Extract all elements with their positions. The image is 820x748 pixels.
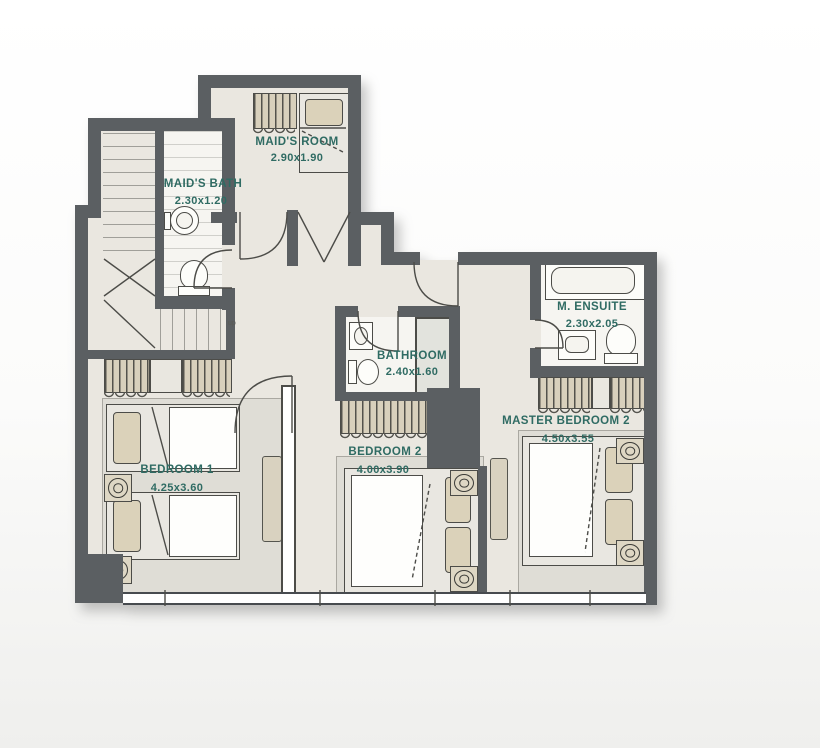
blanket (169, 495, 237, 557)
wall-segment (644, 252, 657, 605)
room-dims-master-bedroom-2: 4.50x3.55 (542, 433, 595, 445)
wall-entry-jamb (287, 210, 298, 266)
wardrobe-front (104, 392, 148, 399)
wall-partition (281, 385, 296, 598)
wall-segment (155, 296, 235, 309)
wall-segment (449, 306, 460, 401)
wardrobe-front (253, 128, 295, 135)
nightstand (104, 474, 132, 502)
nightstand (450, 470, 478, 496)
wardrobe-front (340, 433, 428, 440)
wardrobe (340, 400, 430, 434)
blanket (351, 475, 423, 587)
room-label-maids-room: MAID'S ROOM (255, 136, 338, 148)
wall-segment (75, 554, 123, 603)
wall-segment (155, 131, 164, 301)
toilet-tank (178, 286, 210, 296)
blanket (529, 443, 593, 557)
wall-segment (530, 252, 657, 265)
wardrobe-front (182, 392, 230, 399)
wardrobe-front (610, 408, 646, 415)
wall-segment (394, 252, 420, 265)
wall-segment (335, 306, 358, 317)
room-dims-maids-room: 2.90x1.90 (271, 152, 324, 164)
wall-segment (88, 350, 235, 359)
toilet-tank (604, 353, 638, 364)
cabinet (592, 377, 610, 409)
wardrobe (104, 359, 150, 393)
room-label-bathroom: BATHROOM (377, 350, 447, 362)
window-band (123, 592, 646, 605)
nightstand (450, 566, 478, 592)
room-dims-bathroom: 2.40x1.60 (386, 366, 439, 378)
blanket (169, 407, 237, 469)
wall-segment (226, 310, 235, 352)
room-label-maids-bath: MAID'S BATH (164, 178, 242, 190)
room-label-ensuite: M. ENSUITE (557, 301, 627, 313)
room-dims-ensuite: 2.30x2.05 (566, 318, 619, 330)
wall-block (427, 388, 480, 468)
wall-segment (75, 205, 88, 603)
lamp-icon (108, 478, 128, 498)
floor-plan-sheet: MAID'S ROOM 2.90x1.90 MAID'S BATH 2.30x1… (0, 0, 820, 748)
wardrobe (182, 359, 232, 393)
dresser (490, 458, 508, 540)
sink-backsplash (164, 212, 171, 230)
sink (558, 330, 596, 360)
wall-segment (335, 306, 346, 401)
lamp-icon (620, 544, 640, 562)
room-dims-maids-bath: 2.30x1.20 (175, 195, 228, 207)
lamp-icon (454, 570, 474, 588)
bathtub (545, 262, 645, 300)
nightstand (616, 540, 644, 566)
bed-twin-1 (106, 404, 240, 472)
room-dims-bedroom-1: 4.25x3.60 (151, 482, 204, 494)
toilet (180, 260, 208, 289)
lamp-icon (620, 442, 640, 460)
wardrobe (610, 377, 648, 409)
wardrobe-front (538, 408, 590, 415)
cabinet (150, 359, 182, 393)
pillow (305, 99, 343, 126)
pillow (605, 499, 633, 545)
room-label-master-bedroom-2: MASTER BEDROOM 2 (502, 415, 630, 427)
room-label-bedroom-2: BEDROOM 2 (348, 446, 421, 458)
bed-twin-2 (106, 492, 240, 560)
wall-segment (478, 466, 487, 602)
wall-segment (198, 75, 361, 88)
lamp-icon (454, 474, 474, 492)
stairs-upper-flight (103, 133, 155, 259)
nightstand (616, 438, 644, 464)
wall-segment (348, 75, 361, 266)
toilet (357, 359, 379, 385)
wall-segment (88, 118, 101, 218)
wardrobe (253, 93, 297, 129)
toilet-tank (348, 360, 357, 384)
wall-segment (530, 366, 646, 377)
room-label-bedroom-1: BEDROOM 1 (140, 464, 213, 476)
floor-plan: MAID'S ROOM 2.90x1.90 MAID'S BATH 2.30x1… (0, 0, 820, 748)
wall-segment (381, 212, 394, 265)
pillow (113, 412, 141, 464)
wall-segment (530, 252, 541, 320)
dresser (262, 456, 282, 542)
room-dims-bedroom-2: 4.00x3.90 (357, 464, 410, 476)
stairs-up-label: up (228, 320, 236, 327)
wall-segment (88, 118, 235, 131)
sink (170, 206, 199, 235)
pillow (113, 500, 141, 552)
wardrobe (538, 377, 592, 409)
sink (349, 322, 373, 350)
